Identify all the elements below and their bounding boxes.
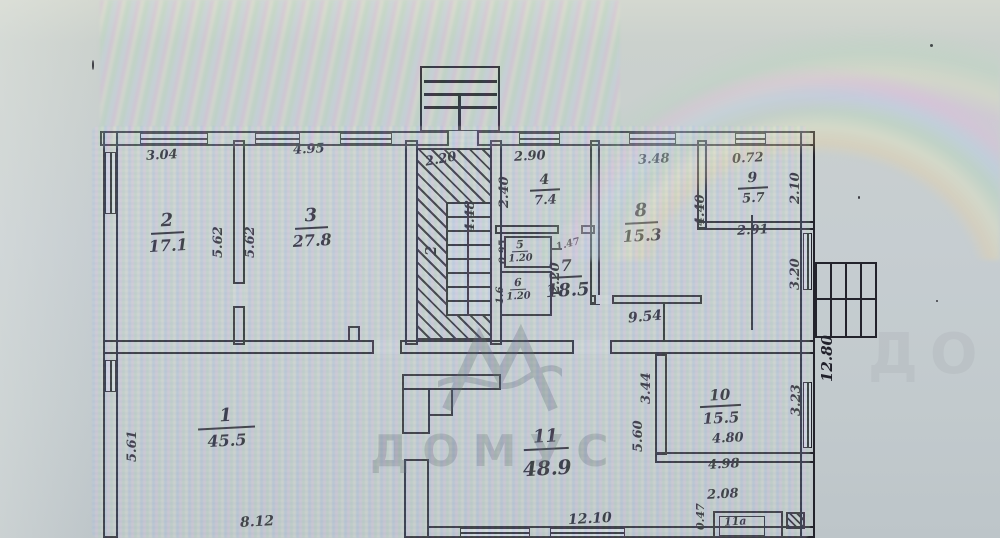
room-label-6: 6 1.20 [505,275,531,302]
room-label-9: 9 5.7 [737,169,769,206]
room-area: 15.5 [700,408,742,428]
dim-label: 0.47 [695,503,706,530]
window [140,133,208,144]
room-label-10: 10 15.5 [699,385,742,428]
wall [655,354,667,455]
floor-plan-scan: 1 45.5 2 17.1 3 27.8 4 7.4 5 1.20 6 1.20… [0,0,1000,538]
dim-label: 5.61 [126,430,139,462]
window [735,133,766,144]
scan-speck [936,300,938,302]
porch-step-line [424,106,497,109]
watermark-logo-icon [438,323,562,419]
window [629,133,676,144]
dim-label: 3.44 [640,372,653,404]
dim-label: 3.48 [638,152,670,167]
window [460,528,530,537]
room-label-1: 1 45.5 [197,404,256,452]
room-label-4: 4 7.4 [529,171,561,208]
dim-label: 2.20 [549,262,562,294]
dim-label: 5.62 [244,226,257,258]
dim-label: 1.6 [496,287,506,304]
room-area: 1.20 [506,290,531,302]
dim-label: 4.98 [708,457,740,472]
room-number: 9 [737,170,768,189]
wall [590,140,600,305]
room-number: 3 [294,206,328,230]
dim-label: 3.04 [146,148,178,163]
dim-label: 1.47 [555,237,581,253]
watermark-text: ДОМУС [370,426,622,477]
dim-label: 3.20 [789,258,802,290]
door-opening [572,340,612,354]
room-area: 27.8 [292,230,332,251]
dim-label: 8.12 [240,514,275,530]
scan-edge-glow [0,0,100,538]
window [803,233,812,290]
dim-label: 5.62 [212,226,225,258]
window [519,133,560,144]
scan-speck [92,60,94,70]
window [105,360,116,392]
room-label-3: 3 27.8 [291,204,332,251]
moire-overlay [100,0,620,148]
room-number: 5 [512,239,528,252]
dim-label: 0.72 [732,151,764,166]
door-opening [557,225,583,234]
window [105,152,116,214]
room-number: 10 [699,387,741,408]
dim-label: 0.95 [499,240,509,264]
room-area: 15.3 [622,225,662,246]
door-opening [447,131,479,146]
dim-label: 2.90 [514,149,546,164]
dim-label: 4.95 [293,142,325,157]
porch-step-line [424,93,497,96]
dim-label: 4.80 [712,431,744,446]
dim-label: 4.48 [464,200,477,232]
room-number: 8 [624,201,658,225]
dim-label: 2.40 [498,176,511,208]
dim-label: 4.40 [694,194,707,226]
room-label-8: 8 15.3 [621,199,662,246]
door-opening [594,295,614,304]
dim-label: 5.60 [632,420,645,452]
room-label-11a: 11а [724,515,747,527]
room-number: 1 [197,406,255,431]
door-opening [233,282,245,308]
room-number: 6 [510,277,526,290]
dim-label: 2.08 [707,487,739,502]
dim-label: 2.10 [789,172,802,204]
room-area: 1.20 [508,252,533,264]
watermark-partial-text: ДО [868,322,989,387]
room-number: 2 [150,211,184,235]
room-area: 5.7 [738,190,768,207]
scan-speck [858,196,860,199]
window [803,382,812,448]
room-label-5: 5 1.20 [507,237,533,264]
scan-speck [930,44,933,47]
window [550,528,625,537]
porch-step-line [424,80,497,83]
flue-shaft [786,512,805,529]
dim-label: 9.54 [627,309,662,326]
porch-rail-line [458,96,461,132]
dim-label: 12.10 [568,511,613,527]
door-jamb-line [663,304,665,340]
room-label-2: 2 17.1 [147,209,188,256]
window [340,133,392,144]
dim-label: 3.23 [790,384,803,416]
room-area: 45.5 [198,429,255,451]
room-area: 17.1 [148,235,188,256]
dim-label: 2 [424,246,439,256]
room-number: 4 [529,172,560,191]
door-opening [372,340,402,354]
external-stairs-landing-line [817,298,875,300]
dim-label: 2.91 [737,223,769,238]
wall-stub [348,326,360,342]
dim-label: 12.80 [820,335,835,382]
room-area: 7.4 [530,192,560,209]
